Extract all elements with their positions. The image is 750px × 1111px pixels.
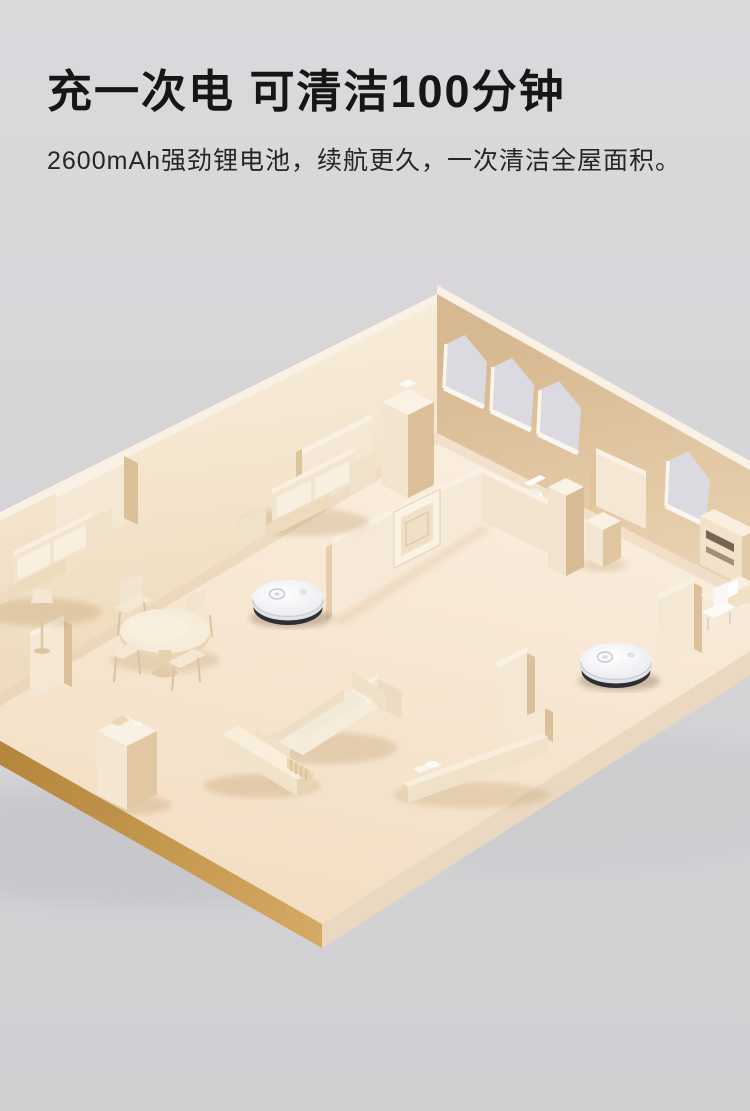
cabinet [579, 512, 627, 572]
header: 充一次电 可清洁100分钟 2600mAh强劲锂电池，续航更久，一次清洁全屋面积… [47, 69, 681, 175]
product-marketing-page: { "header": { "title": "充一次电 可清洁100分钟", … [0, 0, 750, 1111]
page-title: 充一次电 可清洁100分钟 [47, 69, 681, 115]
page-subtitle: 2600mAh强劲锂电池，续航更久，一次清洁全屋面积。 [47, 148, 681, 176]
